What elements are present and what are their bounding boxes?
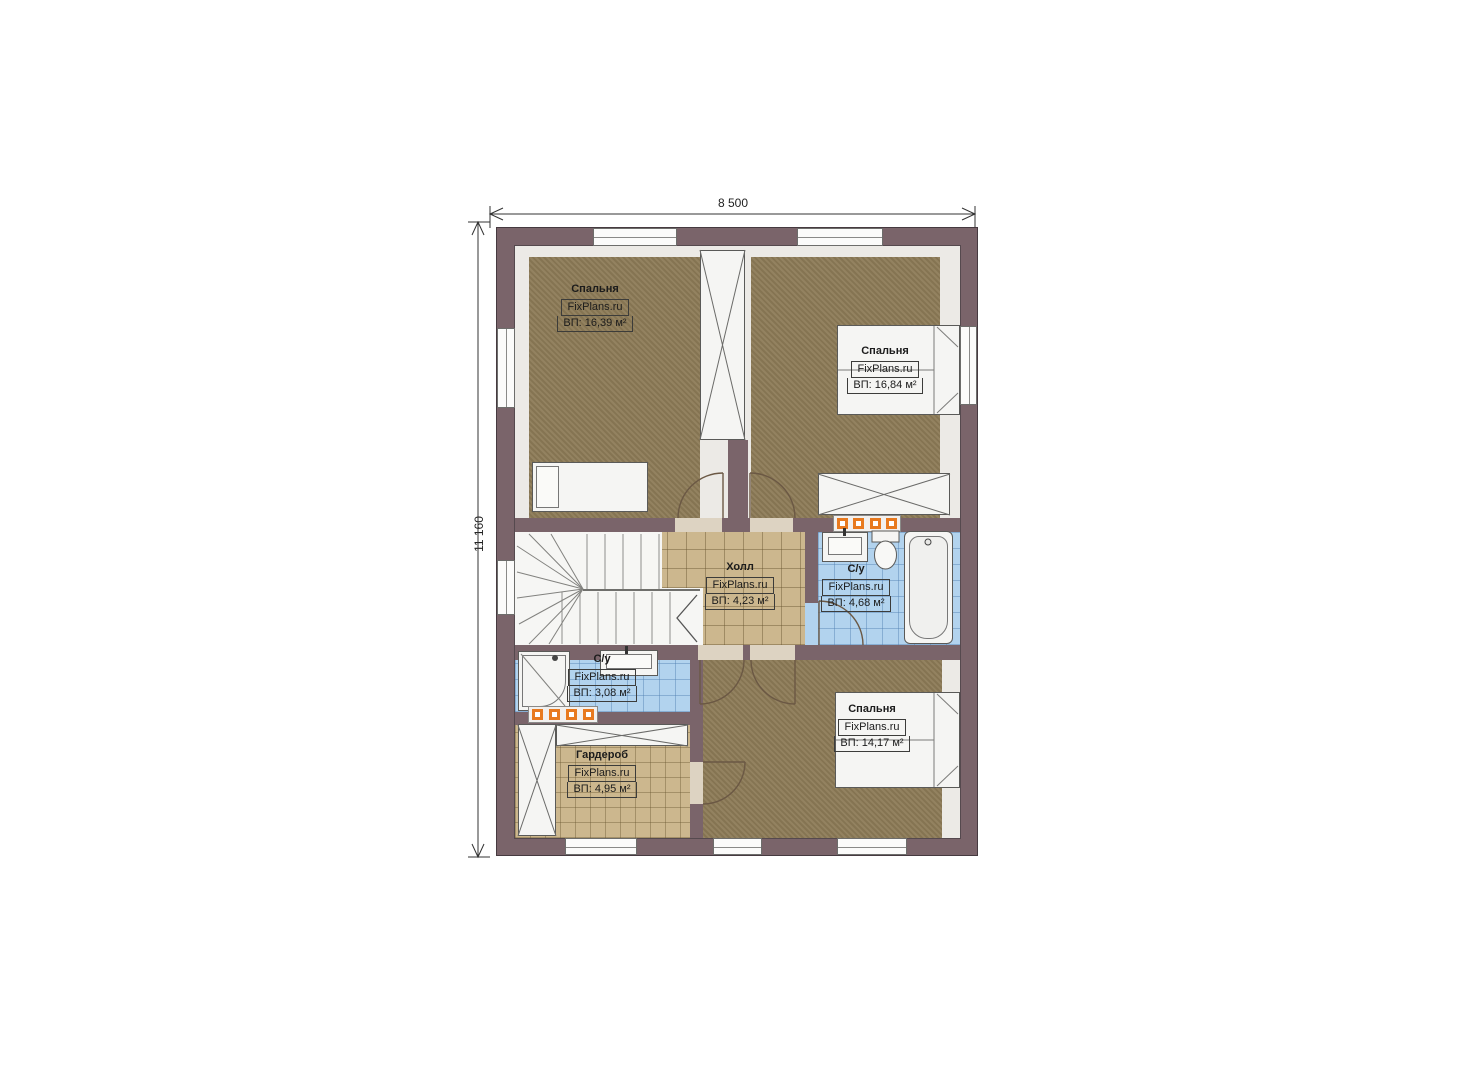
window-bottom-3 [837,838,907,855]
window-right-1 [960,326,977,405]
closet-between-top-bedrooms [700,250,745,440]
room-label-bedroom-top-left: Спальня FixPlans.ru ВП: 16,39 м² [535,282,655,332]
pillow-bedroom-top-left [536,466,559,508]
staircase-area [515,532,662,645]
room-label-hall: Холл FixPlans.ru ВП: 4,23 м² [682,560,798,610]
watermark: FixPlans.ru [822,579,889,596]
window-bottom-1 [565,838,637,855]
door-opening-bedroom-bottom-left [698,645,743,660]
door-opening-bedroom-top-left [675,518,722,532]
door-opening-bedroom-bottom-right [750,645,795,660]
plan-outer-walls: Спальня FixPlans.ru ВП: 16,39 м² Спальня… [497,228,977,855]
radiator-bathroom-left [528,706,598,723]
watermark: FixPlans.ru [706,577,773,594]
window-left-1 [497,328,515,408]
wardrobe-cabinet-top [556,724,688,746]
watermark: FixPlans.ru [568,765,635,782]
room-label-bedroom-bottom: Спальня FixPlans.ru ВП: 14,17 м² [815,702,929,752]
wall-between-top-bedrooms [728,440,748,518]
watermark: FixPlans.ru [568,669,635,686]
room-label-bedroom-top-right: Спальня FixPlans.ru ВП: 16,84 м² [833,344,937,394]
sink-basin-bathroom-right [828,537,862,555]
room-label-bathroom-right: С/у FixPlans.ru ВП: 4,68 м² [802,562,910,612]
window-left-2 [497,560,515,615]
radiator-bathroom-right [833,515,901,532]
floor-plan-canvas: 8 500 11 160 [0,0,1474,1080]
bathtub-basin [909,536,948,639]
window-bottom-2 [713,838,762,855]
door-opening-bedroom-top-right [750,518,793,532]
dimension-height-line [462,212,492,867]
watermark: FixPlans.ru [561,299,628,316]
room-label-wardrobe: Гардероб FixPlans.ru ВП: 4,95 м² [537,748,667,798]
watermark: FixPlans.ru [851,361,918,378]
door-opening-wardrobe [690,762,703,804]
wall-wardrobe-bedroom [690,660,703,838]
watermark: FixPlans.ru [838,719,905,736]
window-top-1 [593,228,677,246]
closet-bedroom-top-right [818,473,950,515]
window-top-2 [797,228,883,246]
room-label-bathroom-left: С/у FixPlans.ru ВП: 3,08 м² [545,652,659,702]
